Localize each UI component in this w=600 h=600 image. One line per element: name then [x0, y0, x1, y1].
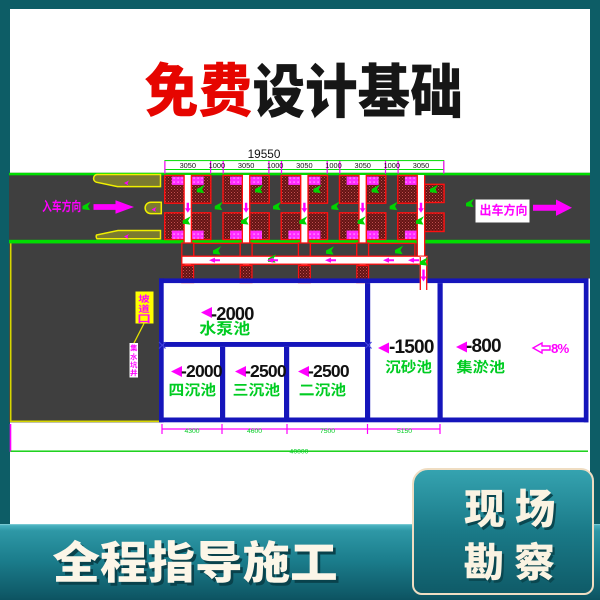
- svg-text:3050: 3050: [296, 161, 312, 170]
- svg-text:1000: 1000: [209, 161, 225, 170]
- svg-text:4300: 4300: [184, 428, 199, 435]
- svg-text:3050: 3050: [413, 161, 429, 170]
- svg-text:7500: 7500: [320, 428, 335, 435]
- svg-text:1000: 1000: [267, 161, 283, 170]
- svg-text:1000: 1000: [384, 161, 400, 170]
- svg-text:19550: 19550: [248, 147, 281, 161]
- svg-text:40000: 40000: [290, 448, 309, 455]
- svg-text:3050: 3050: [354, 161, 370, 170]
- svg-text:1000: 1000: [325, 161, 341, 170]
- svg-text:5150: 5150: [397, 428, 412, 435]
- svg-text:3050: 3050: [180, 161, 196, 170]
- svg-text:4600: 4600: [247, 428, 262, 435]
- svg-text:3050: 3050: [238, 161, 254, 170]
